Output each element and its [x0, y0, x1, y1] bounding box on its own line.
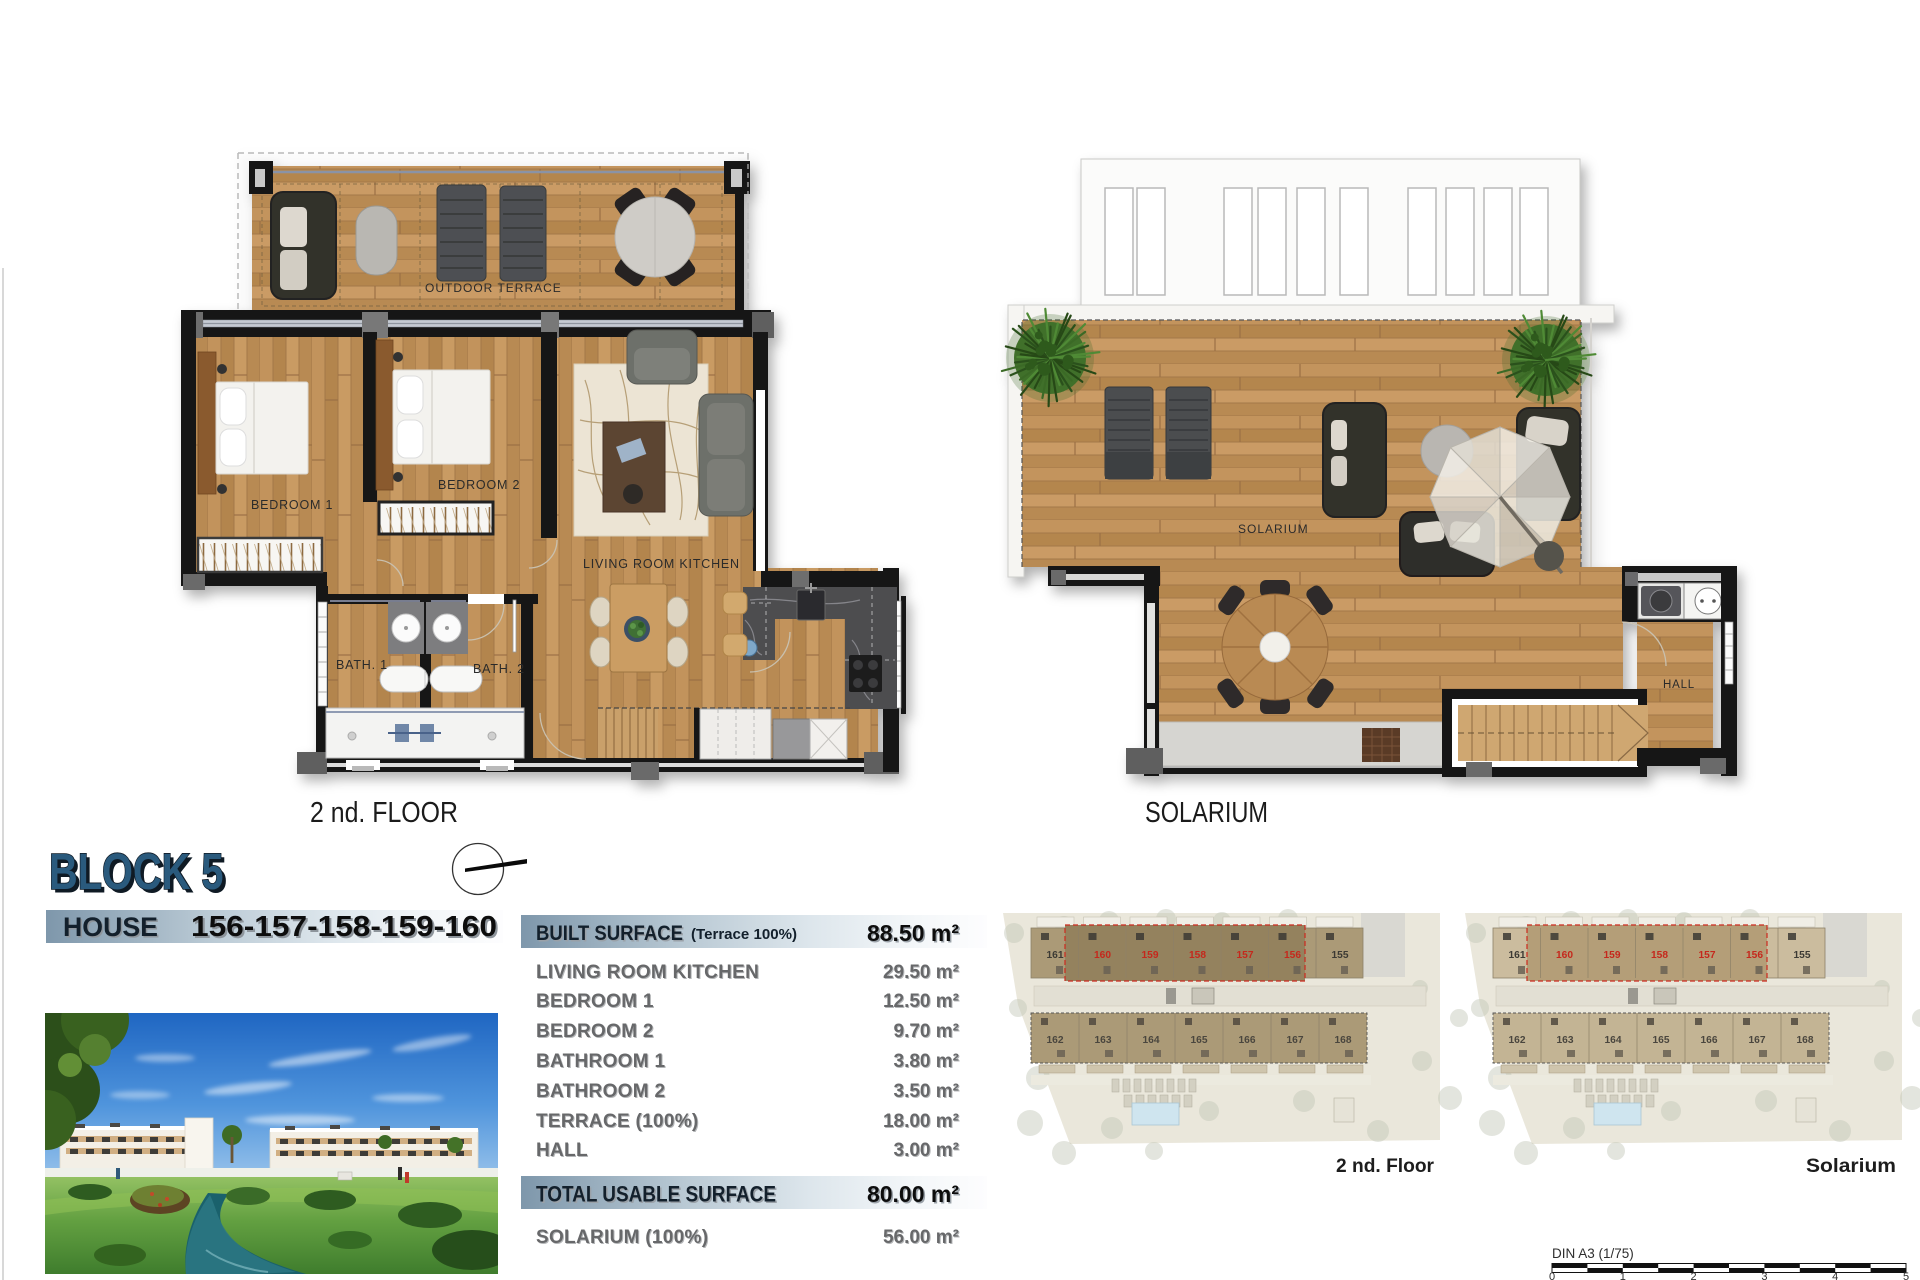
- svg-text:80.00 m²: 80.00 m²: [867, 1181, 959, 1207]
- svg-text:Solarium: Solarium: [1806, 1156, 1896, 1177]
- svg-text:164: 164: [1605, 1035, 1622, 1046]
- svg-text:161: 161: [1047, 950, 1064, 961]
- svg-text:156: 156: [1284, 950, 1301, 961]
- svg-text:160: 160: [1094, 950, 1111, 961]
- svg-text:BATHROOM 2: BATHROOM 2: [536, 1081, 665, 1102]
- svg-text:3.80 m²: 3.80 m²: [894, 1051, 959, 1072]
- svg-text:155: 155: [1332, 950, 1349, 961]
- svg-text:162: 162: [1047, 1035, 1064, 1046]
- svg-text:TOTAL USABLE SURFACE: TOTAL USABLE SURFACE: [536, 1182, 776, 1207]
- svg-text:SOLARIUM: SOLARIUM: [1145, 797, 1268, 829]
- svg-text:161: 161: [1509, 950, 1526, 961]
- svg-text:BATHROOM 1: BATHROOM 1: [536, 1051, 665, 1072]
- svg-text:BLOCK 5: BLOCK 5: [49, 843, 224, 900]
- svg-text:HALL: HALL: [1663, 679, 1695, 691]
- svg-text:BEDROOM 2: BEDROOM 2: [438, 478, 520, 492]
- svg-text:TERRACE (100%): TERRACE (100%): [536, 1111, 699, 1132]
- svg-text:158: 158: [1651, 950, 1668, 961]
- svg-text:155: 155: [1794, 950, 1811, 961]
- svg-text:12.50 m²: 12.50 m²: [883, 991, 959, 1012]
- svg-text:167: 167: [1287, 1035, 1304, 1046]
- svg-text:168: 168: [1335, 1035, 1352, 1046]
- svg-text:164: 164: [1143, 1035, 1160, 1046]
- svg-text:SOLARIUM (100%): SOLARIUM (100%): [536, 1227, 708, 1248]
- svg-text:BEDROOM 1: BEDROOM 1: [536, 991, 654, 1012]
- svg-text:163: 163: [1557, 1035, 1574, 1046]
- svg-text:165: 165: [1653, 1035, 1670, 1046]
- svg-text:159: 159: [1142, 950, 1159, 961]
- svg-text:160: 160: [1556, 950, 1573, 961]
- svg-text:56.00 m²: 56.00 m²: [883, 1227, 959, 1248]
- svg-text:2 nd. Floor: 2 nd. Floor: [1336, 1156, 1435, 1177]
- svg-text:DIN A3 (1/75): DIN A3 (1/75): [1552, 1246, 1634, 1261]
- svg-text:156-157-158-159-160: 156-157-158-159-160: [191, 911, 497, 943]
- svg-text:158: 158: [1189, 950, 1206, 961]
- svg-text:SOLARIUM: SOLARIUM: [1238, 522, 1309, 536]
- svg-text:BEDROOM 1: BEDROOM 1: [251, 498, 333, 512]
- svg-text:166: 166: [1239, 1035, 1256, 1046]
- svg-text:3.50 m²: 3.50 m²: [894, 1081, 959, 1102]
- svg-text:LIVING ROOM KITCHEN: LIVING ROOM KITCHEN: [536, 962, 759, 983]
- svg-text:BATH. 2: BATH. 2: [473, 662, 525, 676]
- svg-text:(Terrace 100%): (Terrace 100%): [691, 926, 797, 943]
- svg-text:2: 2: [1691, 1271, 1697, 1280]
- svg-text:HALL: HALL: [536, 1140, 588, 1161]
- svg-text:163: 163: [1095, 1035, 1112, 1046]
- svg-text:165: 165: [1191, 1035, 1208, 1046]
- svg-text:BATH. 1: BATH. 1: [336, 658, 388, 672]
- svg-text:166: 166: [1701, 1035, 1718, 1046]
- svg-text:29.50 m²: 29.50 m²: [883, 962, 959, 983]
- svg-text:156: 156: [1746, 950, 1763, 961]
- svg-text:1: 1: [1620, 1271, 1626, 1280]
- svg-text:159: 159: [1604, 950, 1621, 961]
- svg-text:168: 168: [1797, 1035, 1814, 1046]
- svg-text:LIVING ROOM KITCHEN: LIVING ROOM KITCHEN: [583, 557, 740, 571]
- svg-text:3.00 m²: 3.00 m²: [894, 1140, 959, 1161]
- svg-text:9.70 m²: 9.70 m²: [894, 1021, 959, 1042]
- svg-text:BEDROOM 2: BEDROOM 2: [536, 1021, 654, 1042]
- svg-text:5: 5: [1903, 1271, 1909, 1280]
- svg-text:157: 157: [1699, 950, 1716, 961]
- svg-text:157: 157: [1237, 950, 1254, 961]
- svg-text:BUILT SURFACE: BUILT SURFACE: [536, 922, 683, 945]
- svg-text:3: 3: [1761, 1271, 1767, 1280]
- svg-text:162: 162: [1509, 1035, 1526, 1046]
- svg-text:88.50 m²: 88.50 m²: [867, 920, 959, 946]
- svg-text:OUTDOOR TERRACE: OUTDOOR TERRACE: [425, 281, 562, 295]
- svg-text:167: 167: [1749, 1035, 1766, 1046]
- svg-text:HOUSE: HOUSE: [63, 912, 158, 942]
- svg-text:18.00 m²: 18.00 m²: [883, 1111, 959, 1132]
- svg-text:4: 4: [1832, 1271, 1838, 1280]
- svg-text:2 nd. FLOOR: 2 nd. FLOOR: [310, 797, 458, 829]
- svg-text:0: 0: [1549, 1271, 1555, 1280]
